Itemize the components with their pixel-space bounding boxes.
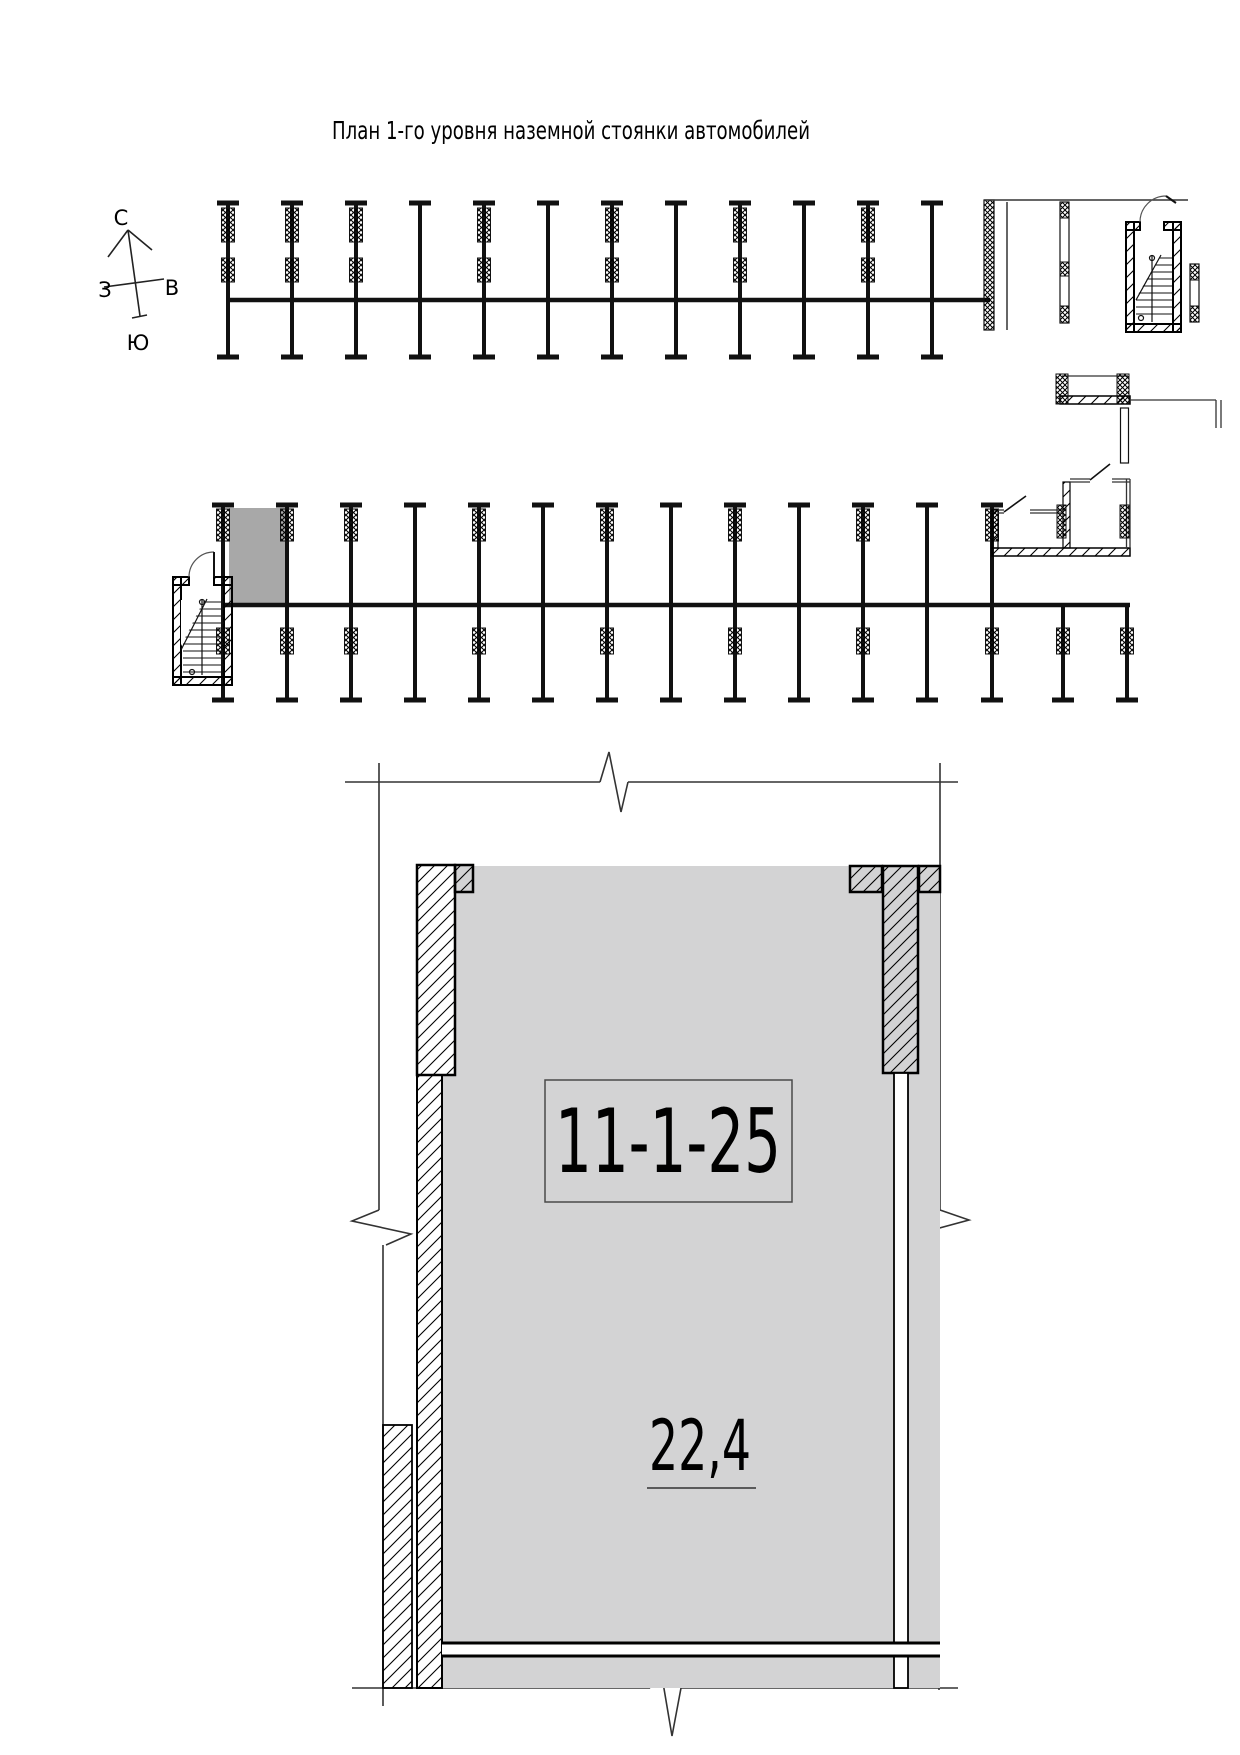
stairwell-top-right — [1126, 196, 1181, 332]
partition-wall — [883, 866, 918, 1073]
top-right-slot-column — [1060, 202, 1069, 323]
door-leaf — [1004, 496, 1026, 512]
compass-south-label: Ю — [127, 331, 150, 355]
parking-block-top — [217, 196, 1221, 463]
column-block — [850, 866, 882, 892]
highlighted-parking-spot[interactable] — [229, 508, 287, 605]
spot-detail-view[interactable]: 11-1-25 22,4 — [345, 752, 969, 1736]
parking-block-bottom — [173, 464, 1138, 700]
parking-plan-page: План 1-го уровня наземной стоянки автомо… — [0, 0, 1240, 1755]
slot-column-right-of-stairwell — [1190, 264, 1199, 322]
bottom-band — [442, 1643, 940, 1656]
door-leaf — [1090, 464, 1110, 480]
plan-title: План 1-го уровня наземной стоянки автомо… — [332, 116, 810, 145]
column-block — [919, 866, 940, 892]
compass-west-label: З — [98, 278, 111, 302]
spot-area: 22,4 — [649, 1405, 751, 1487]
ramp-wall-element — [1056, 374, 1221, 463]
compass-east-label: В — [165, 276, 179, 300]
spot-floor — [455, 866, 940, 1688]
door-swing-arc — [189, 552, 214, 577]
spot-number: 11-1-25 — [555, 1090, 781, 1193]
top-block-right-wall — [984, 200, 994, 330]
corner-column — [455, 865, 473, 892]
compass-north-label: С — [114, 206, 129, 230]
utility-rooms-right — [992, 464, 1130, 556]
compass-rose — [104, 230, 164, 318]
partition-strip — [894, 1073, 908, 1688]
